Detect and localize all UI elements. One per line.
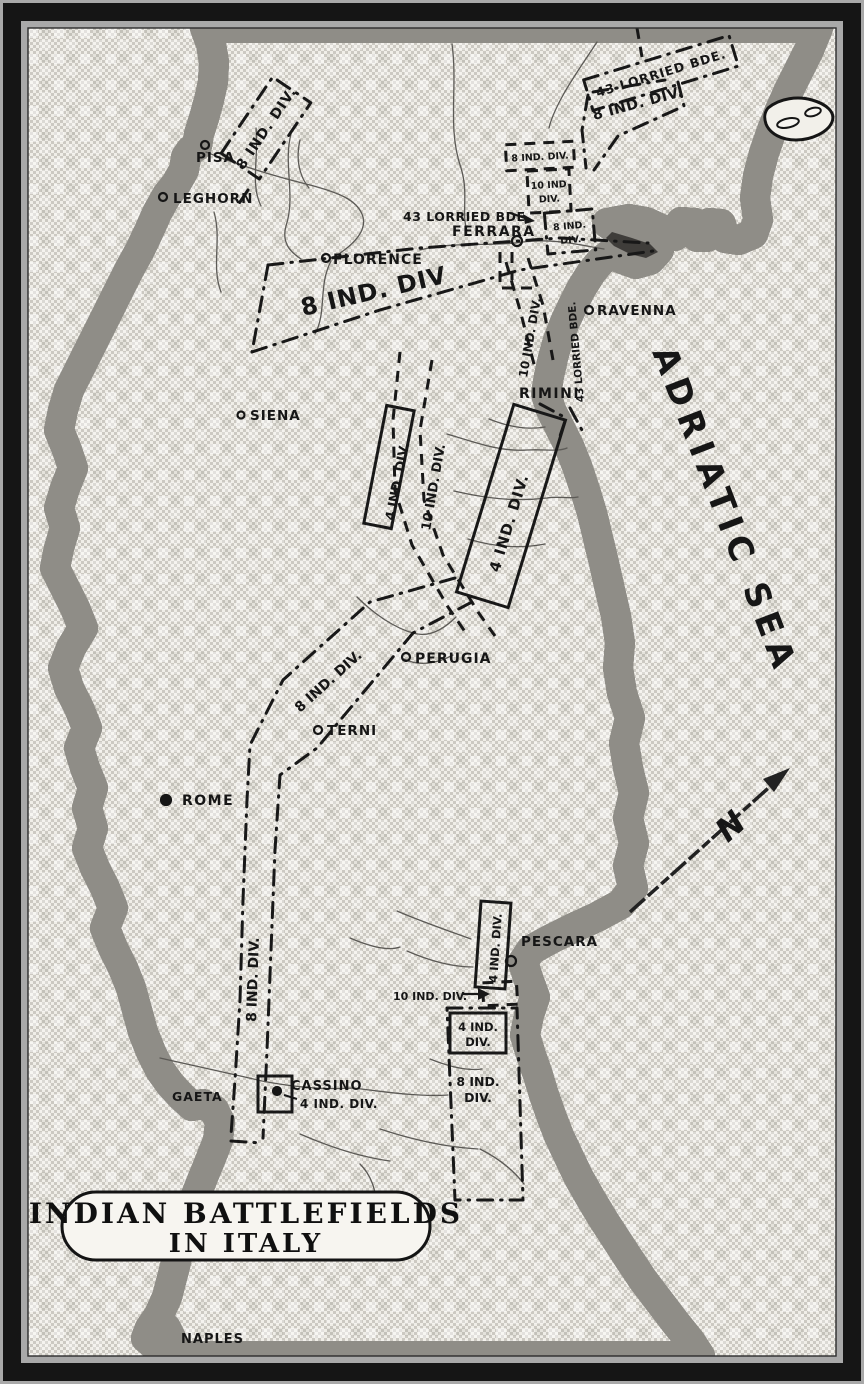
unit-label-sangro-4-l1: 4 IND. (458, 1020, 498, 1034)
unit-label-ferrara-10-l2: DIV. (539, 193, 561, 205)
map-title-line1: INDIAN BATTLEFIELDS (29, 1197, 463, 1230)
city-label-cassino: CASSINO (291, 1079, 363, 1094)
venice-lagoon (765, 98, 833, 140)
city-label-pescara: PESCARA (521, 934, 598, 950)
unit-label-pescara-10-div: 10 IND. DIV. (393, 990, 467, 1003)
city-label-naples: NAPLES (181, 1332, 244, 1347)
city-label-ravenna: RAVENNA (597, 303, 677, 319)
unit-label-sangro-4-l2: DIV. (465, 1035, 491, 1049)
city-label-leghorn: LEGHORN (173, 191, 253, 207)
marker-cassino (273, 1087, 281, 1095)
city-label-gaeta: GAETA (172, 1089, 223, 1104)
map-svg: 8 IND. DIV. 43 LORRIED BDE. 8 IND. DIV. (0, 0, 864, 1384)
scanned-map-page: 8 IND. DIV. 43 LORRIED BDE. 8 IND. DIV. (0, 0, 864, 1384)
city-label-terni: TERNI (327, 723, 377, 739)
city-label-perugia: PERUGIA (415, 651, 492, 667)
unit-label-sangro-8-l1: 8 IND. (456, 1074, 499, 1089)
city-label-rimini: RIMINI (519, 386, 580, 402)
unit-label-ferrara-10-l1: 10 IND (530, 179, 567, 192)
unit-label-lazio-8-div: 8 IND. DIV. (244, 937, 263, 1022)
city-label-ferrara: FERRARA (452, 224, 536, 240)
city-label-pisa: PISA (196, 150, 235, 166)
city-label-rome: ROME (182, 793, 234, 809)
unit-label-ferrara-lorried: 43 LORRIED BDE. (403, 209, 531, 224)
unit-label-sangro-8-l2: DIV. (464, 1090, 492, 1105)
city-label-florence: FLORENCE (333, 252, 423, 268)
unit-label-cassino-4-div: 4 IND. DIV. (300, 1097, 378, 1111)
map-title-line2: IN ITALY (169, 1229, 323, 1259)
unit-label-ferrara-8-l2: DIV. (560, 234, 582, 247)
title-box: INDIAN BATTLEFIELDS IN ITALY (29, 1192, 463, 1260)
sea-and-land-layer: 8 IND. DIV. 43 LORRIED BDE. 8 IND. DIV. (28, 28, 836, 1356)
city-label-siena: SIENA (250, 408, 301, 424)
marker-rome (161, 795, 171, 805)
